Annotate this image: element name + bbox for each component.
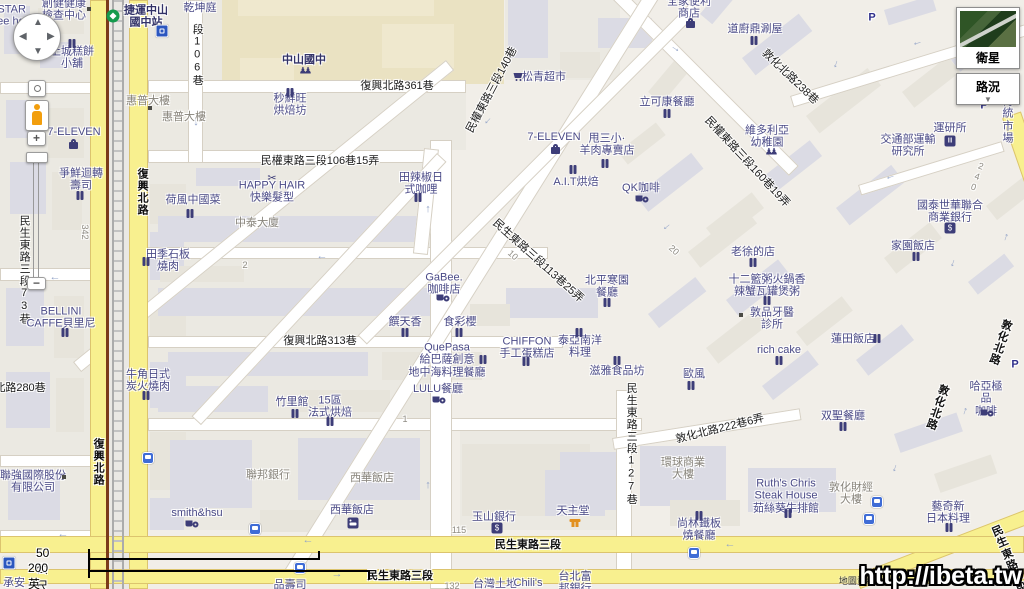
map-label: 聯強國際股份 有限公司 [0,470,66,495]
mrt-rails [112,0,124,589]
oneway-arrow-icon: ↑ [425,203,431,215]
map-label: 竹里館 [276,396,309,408]
map-label: 老徐的店 [731,246,775,258]
map-label: 敦化北路 [986,317,1013,366]
oneway-arrow-icon: ↑ [425,479,431,491]
map-label: 品壽司 [274,579,307,589]
map-label: 食彩櫻 [444,316,477,328]
map-label: 泰亞南洋 料理 [558,335,602,360]
restaurant-icon [286,88,295,98]
oneway-arrow-icon: ↑ [1001,230,1010,243]
street [0,82,92,94]
pan-down-icon[interactable]: ▼ [33,47,43,57]
map-label: 民生東路三段 [495,539,561,551]
cafe-icon [437,294,448,303]
restaurant-icon [603,298,612,308]
cafe-icon [433,396,444,405]
map-label: 115 [452,525,466,535]
map-label: 西華飯店 [330,504,374,516]
restaurant-icon [750,36,759,46]
oneway-arrow-icon: ↓ [890,461,899,474]
map-label: 爭鮮迴轉 壽司 [59,168,103,193]
arterial-road [129,0,148,589]
inst-icon [945,136,956,147]
restaurant-icon [142,391,151,401]
map-label: 民生東路三段127巷 [625,383,637,506]
satellite-label: 衛星 [957,49,1019,66]
restaurant-icon [186,209,195,219]
restaurant-icon [401,328,410,338]
restaurant-icon [142,257,151,267]
map-label: 交通部運輸 研究所 [881,134,936,159]
metro-icon [156,25,169,38]
map-label: 荷風中國菜 [166,194,221,206]
oneway-arrow-icon: ← [317,250,328,262]
cafe-icon [981,409,992,418]
pan-right-icon[interactable]: ▶ [47,32,55,42]
building [170,440,252,508]
satellite-button[interactable]: 衛星 [956,7,1020,69]
restaurant-icon [569,165,578,175]
map-label: 復興北路 [92,438,104,486]
sq-icon [87,7,91,11]
scale-tick [368,570,370,579]
map-label: 段106巷 [191,24,203,87]
bank-icon [492,523,503,534]
map-label: 家園飯店 [891,240,935,252]
building [6,372,50,428]
map-label: 7-ELEVEN [527,131,580,143]
building [10,162,46,214]
map-label: rich cake [757,344,801,356]
oneway-arrow-icon: ← [725,538,736,550]
traffic-button[interactable]: 路況 ▼ [956,73,1020,105]
map-label: smith&hsu [171,507,222,519]
oneway-arrow-icon: ← [50,271,61,283]
building [968,254,1014,295]
map-label: 復興北路313巷 [283,335,356,347]
school-icon: ♟♟ [765,148,775,157]
map-label: 132 [444,581,459,589]
map-label: 240 [967,160,987,194]
building [648,277,706,328]
oneway-arrow-icon: ← [58,528,69,540]
map-label: QK咖啡 [622,182,660,194]
map-label: 環球商業 大樓 [661,457,705,482]
school-icon: ♟♟ [299,67,309,76]
zoom-slider-track[interactable] [33,162,39,277]
restaurant-icon [326,417,335,427]
street [0,455,92,467]
restaurant-icon [784,509,793,519]
pan-up-icon[interactable]: ▲ [33,18,43,28]
restaurant-icon [68,39,77,49]
bus-icon [863,513,875,525]
building [762,350,819,400]
map-label: 敦化財經 大樓 [829,482,873,507]
restaurant-icon [839,422,848,432]
restaurant-icon [687,381,696,391]
watermark: http://ibeta.tw [860,562,1022,589]
map-label: 滋雅食品坊 [590,365,645,377]
zoom-in-button[interactable]: + [27,131,46,146]
map-label: 道廚鼎涮屋 [728,23,783,35]
map-label: 20 [667,243,681,257]
building [168,352,368,376]
bank-icon [945,223,956,234]
restaurant-icon [695,511,704,521]
chevron-down-icon: ▼ [957,95,1019,104]
p-icon: P [868,13,875,24]
google-maps-viewport: ASTAR ffee ho創健健康 檢查中心捷運中山 國中站乾坤庭段106巷中山… [0,0,1024,589]
bus-icon [142,452,154,464]
map-label: 復興北路361巷 [360,80,433,92]
map-label: 中泰大廈 [235,217,279,229]
restaurant-icon [291,409,300,419]
map-label: 立可康餐廳 [640,96,695,108]
map-label: 双聖餐廳 [821,410,865,422]
mrtlogo-icon [107,10,120,23]
map-label: 2 [242,260,247,270]
map-label: BELLINI CAFFE貝里尼 [26,306,95,331]
map-label: 1 [402,414,407,424]
map-label: Chili's [514,577,543,589]
map-label: 西華飯店 [350,472,394,484]
scale-bar-feet [88,570,370,572]
map-label: 民生東路三段 [367,570,433,582]
restaurant-icon [61,328,70,338]
cart-icon [514,72,525,82]
restaurant-icon [749,258,758,268]
map-label: 松青超市 [522,71,566,83]
bus-icon [871,496,883,508]
zoom-out-button[interactable]: − [27,277,46,290]
map-label: 342 [80,224,90,239]
map-label: 15區 法式烘焙 [308,395,352,420]
oneway-arrow-icon: ↓ [948,256,957,269]
pan-left-icon[interactable]: ◀ [19,32,27,42]
map-label: 牛角日式 炭火燒肉 [126,369,170,394]
oneway-arrow-icon: ↓ [831,57,840,70]
restaurant-icon [945,523,954,533]
restaurant-icon [76,191,85,201]
map-label: 民權東路三段106巷15弄 [261,155,380,167]
map-label: 聯邦銀行 [246,469,290,481]
restaurant-icon [575,328,584,338]
map-label: 承安 [3,577,25,589]
hotel-icon [348,518,359,529]
pegman-button[interactable] [25,100,49,131]
metro-icon [3,557,16,570]
scissors-icon: ✂ [267,174,276,185]
restaurant-icon [775,356,784,366]
restaurant-icon [455,328,464,338]
map-label: 甩三小· 羊肉專賣店 [580,133,635,158]
oneway-arrow-icon: ← [303,534,314,546]
map-canvas[interactable]: ASTAR ffee ho創健健康 檢查中心捷運中山 國中站乾坤庭段106巷中山… [0,0,1024,589]
map-label: A.I.T烘焙 [553,176,598,188]
map-label: 7-ELEVEN [47,126,100,138]
map-label: 國泰世華聯合 商業銀行 [917,200,983,225]
building [986,176,1024,220]
map-label: 北路280巷 [0,382,46,394]
map-label: QuePasa 給巴薩創意 地中海料理餐廳 [409,342,486,379]
pan-control[interactable]: ▲ ▼ ◀ ▶ [13,13,61,61]
restaurant-icon [522,357,531,367]
oneway-arrow-icon: ← [910,35,924,49]
pegman-icon [32,104,42,126]
map-label: 田季石板 燒肉 [146,249,190,274]
scale-tick [318,551,320,560]
map-label: 玉山銀行 [472,511,516,523]
restaurant-icon [873,334,882,344]
map-label: 北平寒園 餐廳 [585,275,629,300]
zoom-slider-handle[interactable] [26,152,48,163]
bag-icon [69,139,79,149]
map-label: LULU餐廳 [413,383,463,395]
restaurant-icon [601,159,610,169]
sq-icon [148,106,152,110]
bus-icon [688,547,700,559]
satellite-thumbnail [960,11,1016,47]
building [56,378,84,432]
building [934,454,997,492]
sq-icon [62,475,66,479]
map-label: 藝奇新 日本料理 [926,501,970,526]
restaurant-icon [613,356,622,366]
map-label: 敦品牙醫 診所 [750,307,794,332]
restaurant-icon [763,296,772,306]
building [884,0,936,25]
map-label: 十二籃粥火鍋香 辣蟹瓦罐煲粥 [729,274,806,299]
map-label: 蓮田飯店 [831,333,875,345]
reset-view-button[interactable] [28,80,46,97]
mrt-line [106,0,109,589]
restaurant-icon [479,355,488,365]
p-icon: P [1011,360,1018,371]
map-label: 復興北路 [136,168,148,216]
restaurant-icon [414,193,423,203]
building [238,0,434,16]
map-label: 天主堂 [557,505,590,517]
restaurant-icon [663,109,672,119]
cafe-icon [186,520,197,529]
scale-bar-meters [88,558,320,560]
bus-icon [294,562,306,574]
bag-icon [686,18,696,28]
map-label: 台灣土地 [473,578,517,589]
bus-icon [249,523,261,535]
scale-feet-label: 200 英呎 [28,561,48,589]
street [0,268,92,281]
church-icon [570,517,581,527]
map-label: 台北富 邦銀行 [559,571,592,589]
cafe-icon [636,195,647,204]
map-label: 饌天香 [389,316,422,328]
bag-icon [551,144,561,154]
sq-icon [739,313,743,317]
traffic-label: 路況 [957,78,1019,95]
oneway-arrow-icon: ← [658,218,674,234]
restaurant-icon [912,252,921,262]
arterial-road [90,0,107,589]
map-label: 中山國中 [282,54,326,66]
scale-tick [88,549,90,578]
map-label: 尚林鐵板 燒餐廳 [677,518,721,543]
map-label: 乾坤庭 [184,2,217,14]
map-label: 運研所 [934,122,967,134]
map-label: 惠普大樓 [162,111,206,123]
map-label: 歐風 [683,368,705,380]
